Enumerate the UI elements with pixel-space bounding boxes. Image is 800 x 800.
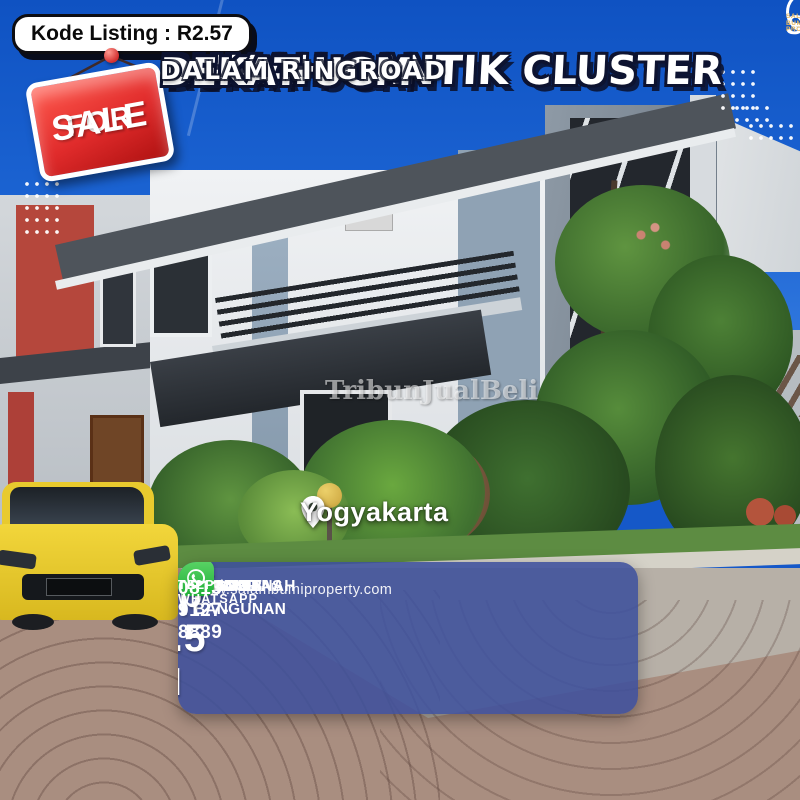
- phone-number[interactable]: 0813-9127-8889: [178, 578, 229, 644]
- info-panel: LUAS TANAH:130 M² LUAS BANGUNAN:220 M² K…: [178, 562, 638, 714]
- license-plate: [46, 578, 112, 596]
- windshield: [10, 487, 144, 527]
- wheel: [112, 614, 158, 630]
- title-subtitle: DALAM RINGROAD: [160, 56, 447, 85]
- dots-decoration-right: [746, 120, 794, 146]
- property-flyer: TribunJualBeli Kode Listing : R2.57 FOR …: [0, 0, 800, 800]
- brand-tagline: SALAM BUMI PROPERTY: [786, 14, 800, 34]
- pin-icon: [104, 48, 119, 63]
- yellow-car: [0, 482, 184, 632]
- photo-watermark: TribunJualBeli: [325, 376, 538, 406]
- wheel: [12, 614, 54, 630]
- flower-pot: [746, 498, 774, 526]
- frangipani-flowers: [620, 215, 690, 265]
- city-name: Yogyakarta: [300, 497, 449, 528]
